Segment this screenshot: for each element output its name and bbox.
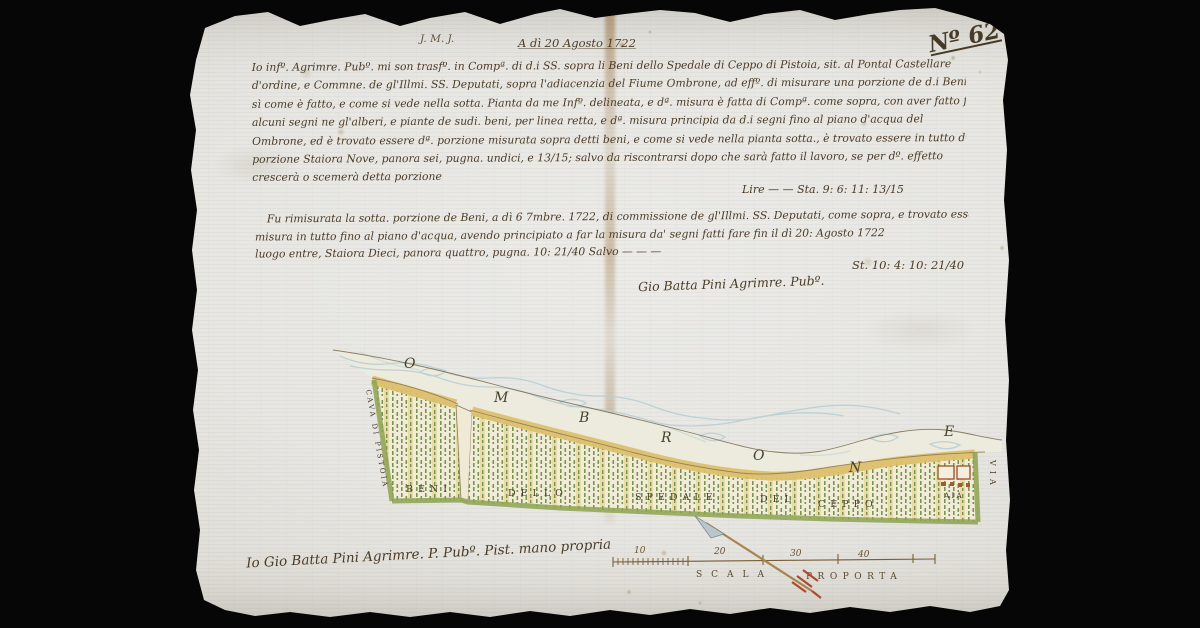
edge-shading: [0, 0, 1200, 628]
manuscript-page: J. M. J. A dì 20 Agosto 1722 Nº 62 Io in…: [0, 0, 1200, 628]
archival-scan: J. M. J. A dì 20 Agosto 1722 Nº 62 Io in…: [0, 0, 1200, 628]
